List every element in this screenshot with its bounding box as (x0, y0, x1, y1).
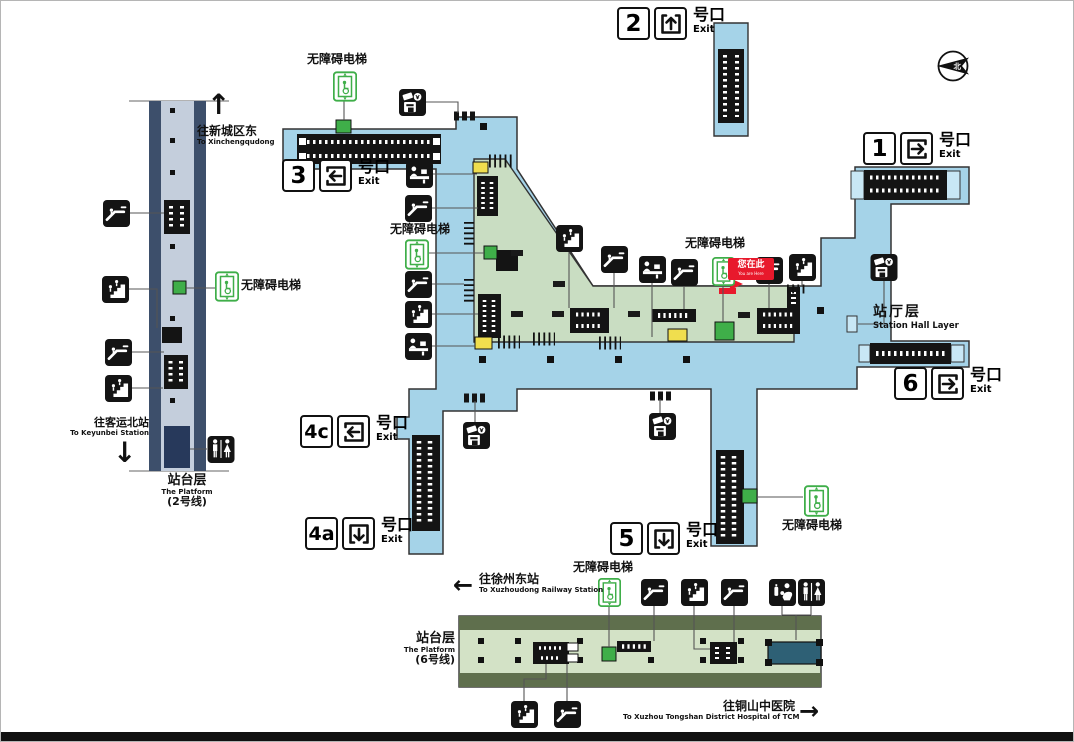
escalator-icon (405, 271, 432, 298)
direction-xuzhoudong: 往徐州东站 To Xuzhoudong Railway Station (479, 573, 603, 594)
exit-number: 5 (610, 522, 643, 555)
exit-arrow-down-icon (647, 522, 680, 555)
stairs-icon (405, 301, 432, 328)
accessible-elevator-icon (334, 72, 356, 100)
exit-arrow-left-icon (337, 415, 370, 448)
direction-keyunbei: 往客运北站 To Keyunbei Station (61, 417, 149, 437)
ticket-vending-machine-icon (463, 422, 490, 449)
exit-arrow-right-icon (900, 132, 933, 165)
ticket-vending-machine-icon (399, 89, 426, 116)
exit-arrow-right-icon (931, 367, 964, 400)
exit-number: 4c (300, 415, 333, 448)
escalator-bank (164, 200, 190, 234)
map-footer-bar (1, 732, 1074, 741)
exit-2-label: 2 号口Exit (617, 7, 725, 40)
service-counter-icon (639, 256, 666, 283)
direction-tongshan: 往铜山中医院 To Xuzhou Tongshan District Hospi… (623, 700, 795, 721)
toilet-icon (798, 579, 825, 606)
west-direction-arrow: ← (453, 573, 473, 597)
toilet-icon (208, 436, 235, 463)
platform-line6-label: 站台层 The Platform (6号线) (391, 631, 455, 667)
exit-3-label: 3 号口Exit (282, 159, 390, 192)
stairs-icon (511, 701, 538, 728)
exit-arrow-up-icon (654, 7, 687, 40)
escalator-bank (164, 355, 188, 389)
direction-xinchengqudong: 往新城区东 To Xinchengqudong (197, 125, 275, 146)
baby-care-icon (769, 579, 796, 606)
exit-number: 6 (894, 367, 927, 400)
ticket-vending-machine-icon (649, 413, 676, 440)
accessible-elevator-label: 无障碍电梯 (241, 279, 301, 293)
accessible-elevator-icon (805, 486, 828, 516)
accessible-elevator-icon (216, 272, 238, 300)
exit-6-label: 6 号口Exit (894, 367, 1002, 400)
escalator-icon (103, 200, 130, 227)
exit-number: 4a (305, 517, 338, 550)
station-map: 北 2 号口Exit 3 号口Exit 1 号口Exit 6 号口Exit 4c… (0, 0, 1074, 742)
exit-5-label: 5 号口Exit (610, 522, 718, 555)
toilet-area (768, 642, 821, 664)
you-are-here-flag: 您在此 You are Here (728, 258, 774, 280)
exit-arrow-left-icon (319, 159, 352, 192)
station-hall-label: 站厅层 Station Hall Layer (873, 301, 959, 331)
accessible-elevator-label: 无障碍电梯 (782, 519, 842, 533)
exit-arrow-down-icon (342, 517, 375, 550)
stairs-icon (105, 375, 132, 402)
south-direction-arrow: ↓ (113, 439, 136, 467)
service-counter-icon (405, 333, 432, 360)
escalator-icon (721, 579, 748, 606)
toilet-area (164, 426, 190, 468)
accessible-elevator-label: 无障碍电梯 (390, 223, 450, 237)
exit-suffix-en: Exit (693, 24, 725, 35)
escalator-icon (554, 701, 581, 728)
escalator-icon (105, 339, 132, 366)
platform-line2-label: 站台层 The Platform (2号线) (127, 473, 247, 509)
north-direction-arrow: ↑ (207, 91, 230, 119)
platform-line6 (459, 616, 823, 687)
exit-number: 3 (282, 159, 315, 192)
east-direction-arrow: → (799, 699, 819, 723)
escalator-icon (671, 259, 698, 286)
ticket-vending-machine-icon (871, 254, 898, 281)
stairs-icon (102, 276, 129, 303)
exit-suffix-cn: 号口 (693, 7, 725, 24)
exit-1-label: 1 号口Exit (863, 132, 971, 165)
exit-4c-label: 4c 号口Exit (300, 415, 408, 448)
svg-text:北: 北 (954, 61, 962, 71)
escalator-icon (601, 246, 628, 273)
elevator-shaft (173, 281, 186, 294)
accessible-elevator-icon (406, 240, 428, 268)
exit-4a-label: 4a 号口Exit (305, 517, 413, 550)
elevator-shaft (602, 647, 616, 661)
accessible-elevator-label: 无障碍电梯 (685, 237, 745, 251)
compass-north-icon: 北 (937, 52, 969, 81)
escalator-icon (641, 579, 668, 606)
stairs-icon (556, 225, 583, 252)
exit-number: 2 (617, 7, 650, 40)
stairs-icon (789, 254, 816, 281)
exit-number: 1 (863, 132, 896, 165)
escalator-icon (405, 195, 432, 222)
accessible-elevator-label: 无障碍电梯 (307, 53, 367, 67)
service-counter-icon (406, 161, 433, 188)
stairs-icon (681, 579, 708, 606)
